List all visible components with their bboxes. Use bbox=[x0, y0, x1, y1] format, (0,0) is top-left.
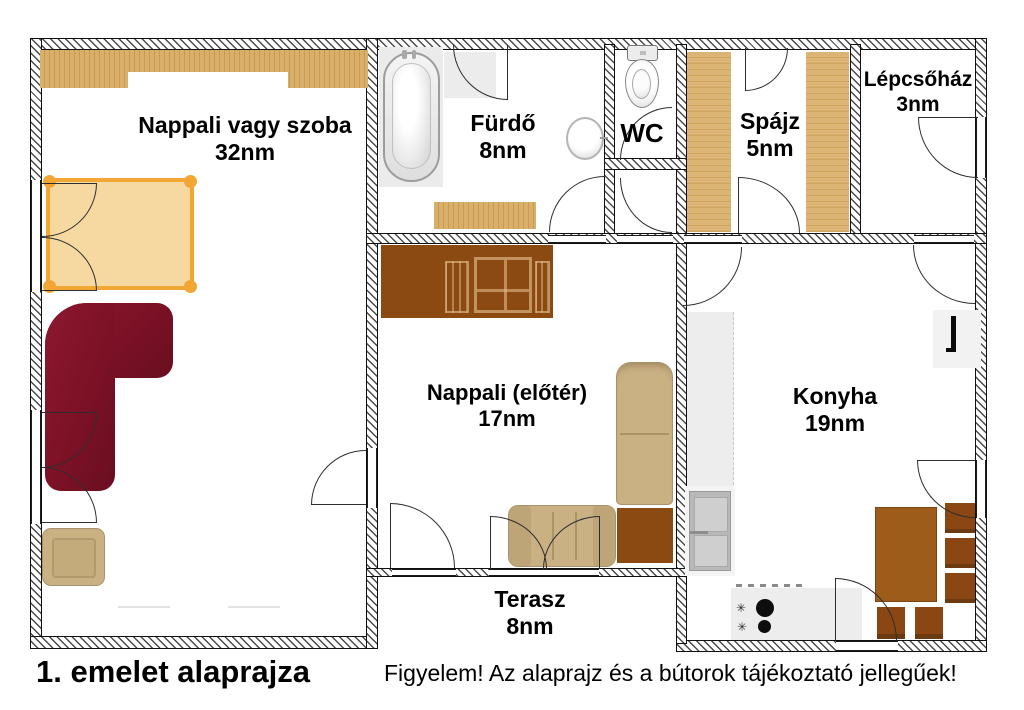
room-area: 5nm bbox=[725, 135, 815, 162]
room-label-wc: WC bbox=[610, 118, 674, 149]
refrigerator-door bbox=[694, 497, 728, 532]
bath-mat bbox=[434, 202, 536, 229]
wardrobe-icon bbox=[445, 261, 469, 313]
faucet-icon bbox=[402, 50, 407, 59]
wall-kitchen-bottom bbox=[676, 640, 987, 652]
door-opening bbox=[684, 235, 742, 243]
room-area: 8nm bbox=[455, 137, 551, 164]
wardrobe-icon bbox=[535, 261, 550, 313]
door-arc bbox=[549, 176, 605, 232]
door-opening bbox=[976, 460, 986, 518]
door-opening bbox=[836, 641, 898, 651]
refrigerator-handle-icon bbox=[690, 531, 708, 534]
room-area: 19nm bbox=[778, 410, 892, 437]
water-heater bbox=[933, 310, 981, 368]
dining-table bbox=[875, 507, 937, 602]
room-label-terrace: Terasz 8nm bbox=[468, 586, 592, 640]
side-table bbox=[617, 508, 673, 563]
door-arc bbox=[311, 450, 366, 505]
door-opening bbox=[367, 448, 377, 508]
washbasin-tap-icon bbox=[600, 137, 608, 139]
washbasin bbox=[566, 117, 604, 160]
room-area: 17nm bbox=[400, 406, 614, 432]
room-label-kitchen: Konyha 19nm bbox=[778, 383, 892, 437]
wardrobe-icon bbox=[474, 257, 532, 313]
door-arc bbox=[918, 117, 978, 178]
bed-corner-knob bbox=[184, 175, 197, 188]
room-name: Spájz bbox=[725, 108, 815, 135]
room-name: Lépcsőház bbox=[857, 68, 979, 93]
burner-symbol-icon: ✳ bbox=[737, 620, 747, 634]
room-area: 8nm bbox=[468, 613, 592, 640]
door-arc bbox=[390, 503, 455, 568]
room-name: Nappali (előtér) bbox=[400, 380, 614, 406]
door-opening bbox=[392, 569, 456, 576]
room-name: Konyha bbox=[778, 383, 892, 410]
room-label-staircase: Lépcsőház 3nm bbox=[857, 68, 979, 118]
burner-symbol-icon: ✳ bbox=[736, 601, 746, 615]
kitchen-counter bbox=[687, 312, 734, 490]
wall-top bbox=[30, 38, 987, 50]
room-name: Nappali vagy szoba bbox=[123, 112, 367, 139]
door-opening bbox=[914, 235, 974, 243]
room-name: Terasz bbox=[468, 586, 592, 613]
refrigerator-door bbox=[694, 535, 728, 567]
room-area: 3nm bbox=[857, 93, 979, 118]
sofa-cushion-seam bbox=[620, 433, 669, 435]
wardrobe-strip-notch bbox=[128, 72, 288, 88]
refrigerator-body bbox=[689, 491, 731, 571]
water-heater-pipe-icon bbox=[951, 316, 956, 350]
burner-large bbox=[756, 599, 774, 617]
burner-small bbox=[758, 620, 771, 633]
sofa-vertical bbox=[616, 362, 673, 505]
toilet-bowl-inner bbox=[632, 69, 651, 99]
wall-upper-row-bottom bbox=[366, 233, 987, 244]
room-label-living: Nappali vagy szoba 32nm bbox=[123, 112, 367, 166]
water-heater-foot-icon bbox=[946, 348, 956, 352]
chair bbox=[945, 573, 975, 603]
door-opening bbox=[617, 235, 673, 243]
counter-edge-marks bbox=[736, 584, 808, 587]
door-arc bbox=[620, 178, 672, 233]
refrigerator bbox=[685, 486, 735, 576]
plan-title: 1. emelet alaprajza bbox=[36, 654, 310, 690]
wall-bottom-left bbox=[30, 636, 378, 649]
door-arc bbox=[683, 247, 742, 306]
faucet-icon bbox=[412, 50, 416, 59]
room-name: Fürdő bbox=[455, 110, 551, 137]
door-arc bbox=[745, 48, 788, 91]
bed-corner-knob bbox=[184, 280, 197, 293]
floor-mark bbox=[228, 606, 280, 608]
flush-button-icon bbox=[640, 51, 646, 55]
armchair bbox=[42, 528, 105, 586]
armchair-seat bbox=[52, 538, 96, 578]
chair bbox=[915, 607, 943, 639]
bathtub-basin bbox=[392, 63, 431, 169]
room-area: 32nm bbox=[123, 139, 367, 166]
toilet-bowl bbox=[625, 59, 659, 108]
wardrobe-cabinet bbox=[381, 245, 553, 318]
room-name: WC bbox=[610, 118, 674, 149]
door-opening bbox=[548, 235, 606, 243]
door-opening bbox=[31, 410, 41, 524]
disclaimer-text: Figyelem! Az alaprajz és a bútorok tájék… bbox=[384, 660, 957, 687]
chair bbox=[945, 538, 975, 568]
room-label-bathroom: Fürdő 8nm bbox=[455, 110, 551, 164]
room-label-hall: Nappali (előtér) 17nm bbox=[400, 380, 614, 432]
wall-left bbox=[30, 38, 42, 649]
door-arc bbox=[738, 177, 800, 233]
door-opening bbox=[489, 569, 599, 576]
floor-plan: ✳ ✳ Nappali vagy szoba 32nm Fürdő 8nm WC… bbox=[0, 0, 1024, 710]
room-label-pantry: Spájz 5nm bbox=[725, 108, 815, 162]
door-opening bbox=[31, 180, 41, 292]
wall-living-middle bbox=[366, 38, 378, 649]
floor-mark bbox=[118, 606, 170, 608]
bathtub bbox=[383, 52, 440, 182]
door-arc bbox=[913, 245, 975, 304]
